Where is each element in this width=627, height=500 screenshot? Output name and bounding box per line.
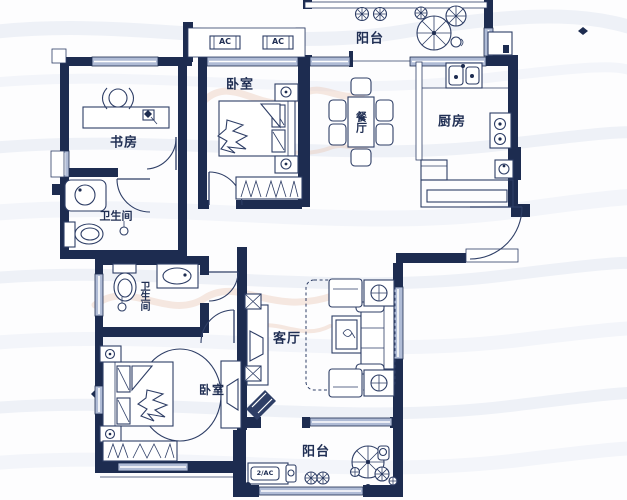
floor-plan-page: 阳台 卧室 餐厅 厨房 书房 卫生间 卫生间 客厅 卧室 阳台 AC AC 2/… (0, 0, 627, 500)
stove (490, 113, 511, 148)
label-balcony-top: 阳台 (356, 33, 384, 46)
tv-cabinet (245, 294, 268, 385)
label-ac-right: AC (272, 38, 284, 46)
kitchen-small-sink (495, 160, 513, 178)
wardrobe-bottom (103, 441, 177, 461)
toilet-upper (64, 222, 103, 247)
floor-plan-drawing (0, 0, 627, 500)
label-bath-upper: 卫生间 (100, 211, 133, 222)
doors (117, 137, 522, 343)
kitchen-sink (446, 63, 482, 88)
bed-top (218, 101, 295, 156)
label-bath-lower: 卫生间 (138, 281, 148, 311)
coffee-table (332, 316, 361, 353)
label-kitchen: 厨房 (438, 116, 466, 129)
water-heater (488, 32, 512, 55)
washbasin-upper (65, 180, 106, 211)
label-bedroom-bottom: 卧室 (199, 384, 225, 396)
study-chair (103, 88, 134, 109)
bed-bottom (103, 362, 173, 426)
label-ac-left: AC (219, 38, 231, 46)
label-bedroom-top: 卧室 (226, 79, 254, 92)
plants-top (356, 6, 467, 26)
wardrobe-top (236, 177, 302, 199)
label-ac-bottom: 2/AC (257, 470, 274, 477)
label-living: 客厅 (273, 333, 301, 346)
toilet-lower (113, 264, 136, 301)
label-balcony-bottom: 阳台 (302, 446, 330, 459)
floor-drain-upper (120, 221, 128, 235)
label-dining: 餐厅 (356, 111, 367, 133)
washbasin-lower (157, 264, 198, 288)
label-study: 书房 (110, 137, 138, 150)
study-desk (83, 107, 169, 128)
